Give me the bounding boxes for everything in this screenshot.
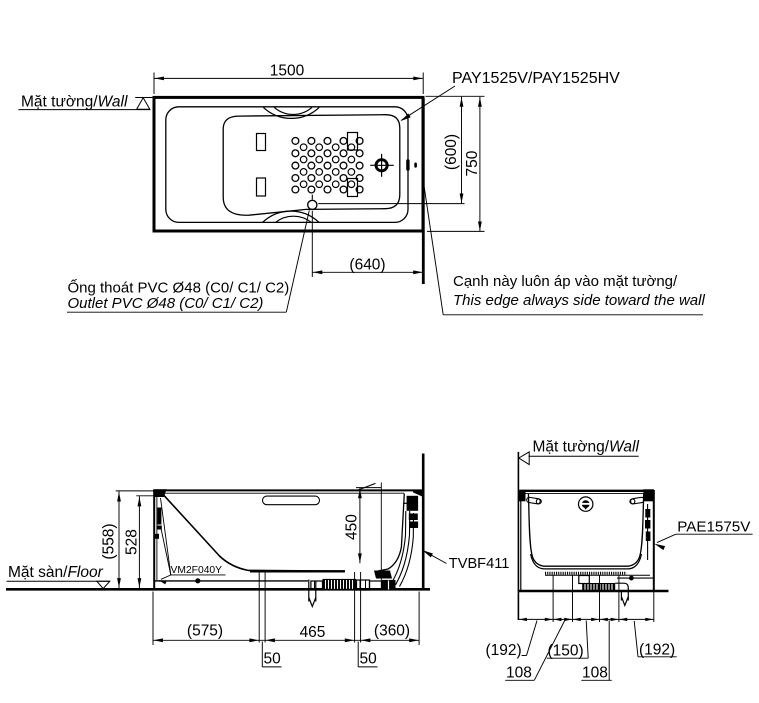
svg-text:(575): (575) [187, 623, 223, 640]
svg-text:1500: 1500 [270, 63, 305, 80]
svg-text:Ống thoát PVC Ø48 (C0/ C1/ C2): Ống thoát PVC Ø48 (C0/ C1/ C2) [68, 279, 290, 297]
svg-text:PAE1575V: PAE1575V [677, 519, 751, 536]
svg-text:108: 108 [506, 665, 532, 682]
svg-text:Mặt tường/Wall: Mặt tường/Wall [21, 94, 128, 111]
svg-text:TVBF411: TVBF411 [449, 556, 510, 572]
svg-text:(150): (150) [548, 643, 584, 660]
svg-text:750: 750 [464, 150, 481, 176]
svg-text:450: 450 [344, 514, 361, 540]
svg-text:PAY1525V/PAY1525HV: PAY1525V/PAY1525HV [452, 70, 620, 87]
svg-text:465: 465 [300, 624, 326, 641]
svg-text:(600): (600) [443, 134, 460, 170]
svg-text:(558): (558) [101, 523, 118, 559]
svg-text:50: 50 [360, 651, 378, 668]
svg-text:Outlet PVC Ø48 (C0/ C1/ C2): Outlet PVC Ø48 (C0/ C1/ C2) [68, 295, 264, 312]
svg-text:528: 528 [124, 529, 141, 555]
svg-text:(360): (360) [374, 623, 410, 640]
svg-text:(192): (192) [486, 642, 522, 659]
svg-text:(192): (192) [639, 642, 675, 659]
svg-text:This edge always side toward t: This edge always side toward the wall [453, 292, 705, 309]
svg-text:108: 108 [582, 665, 608, 682]
svg-text:Cạnh này luôn áp vào mặt tường: Cạnh này luôn áp vào mặt tường/ [453, 273, 678, 290]
svg-text:Mặt tường/Wall: Mặt tường/Wall [533, 439, 640, 456]
svg-text:Mặt sàn/Floor: Mặt sàn/Floor [8, 564, 104, 581]
svg-text:(640): (640) [349, 257, 385, 274]
svg-text:50: 50 [264, 651, 282, 668]
